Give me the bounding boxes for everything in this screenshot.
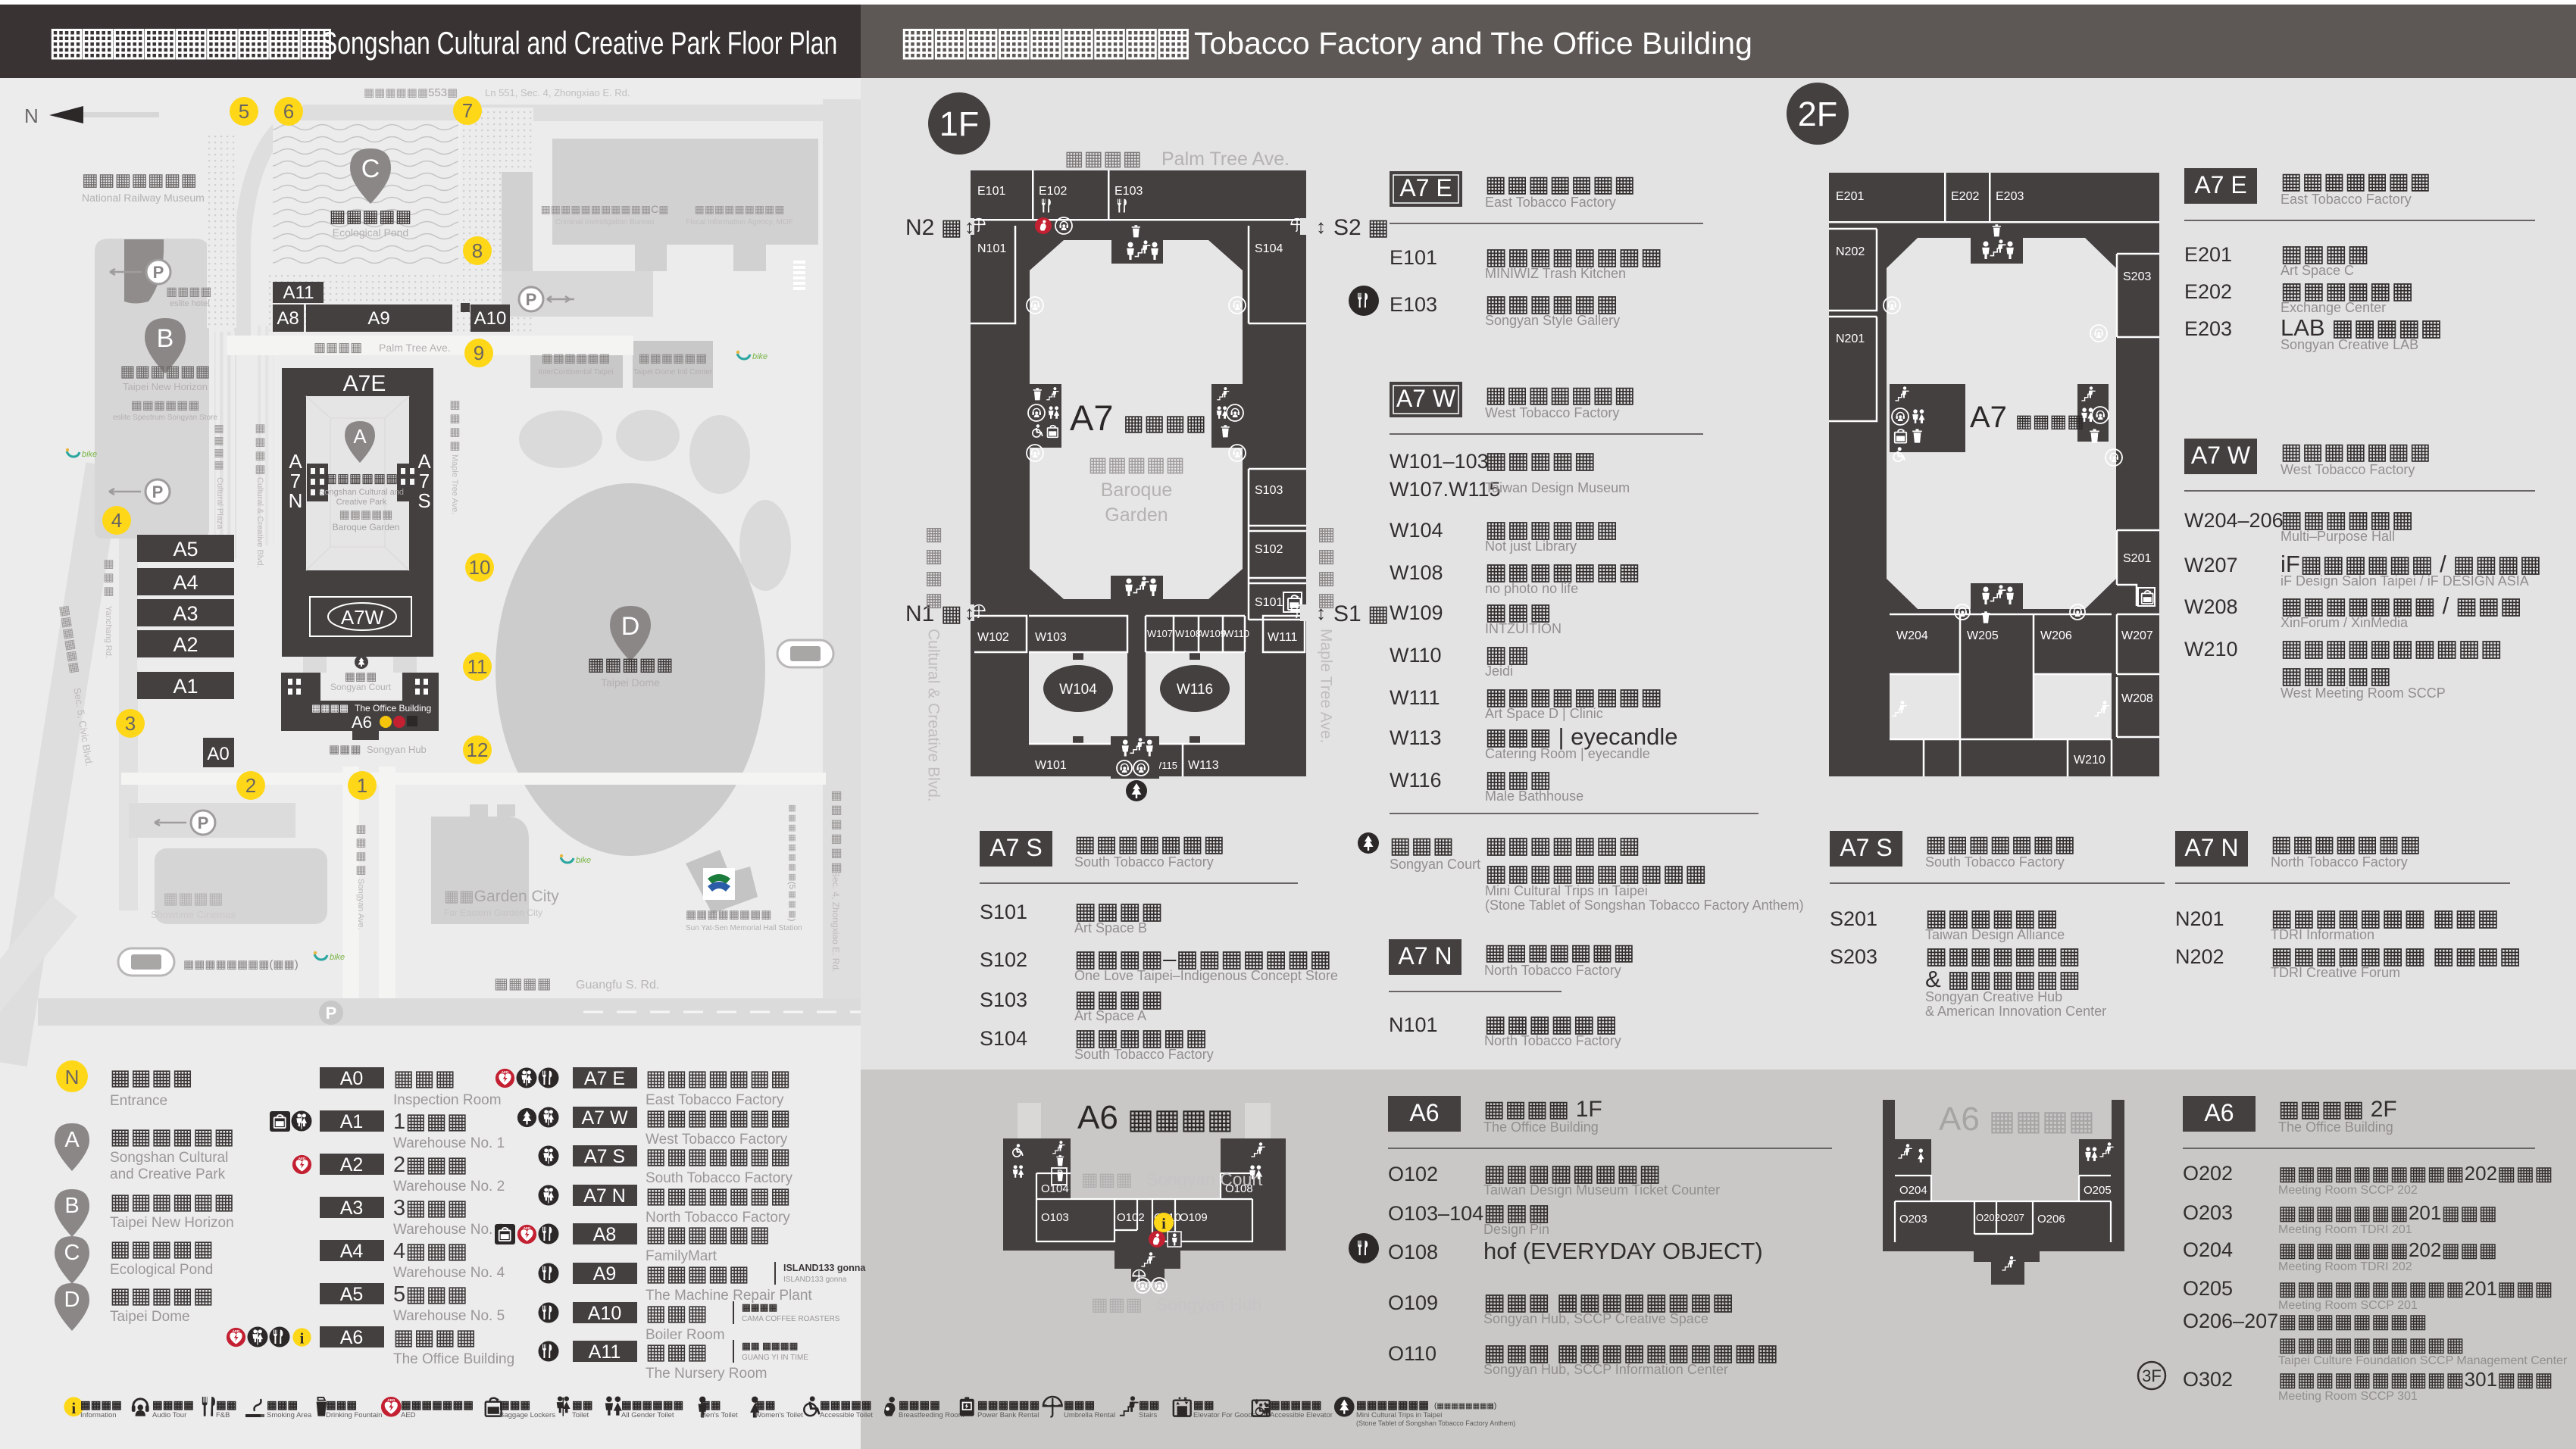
svg-text:A5: A5 [173,538,198,561]
svg-text:S2 ▦: S2 ▦ [1333,215,1389,240]
svg-text:A6 ▦▦▦▦: A6 ▦▦▦▦ [1939,1101,2095,1138]
svg-text:E203: E203 [1996,190,2024,203]
svg-text:Songyan Creative Hub: Songyan Creative Hub [1925,989,2062,1004]
svg-text:W204: W204 [1896,629,1928,642]
svg-text:The Office Building: The Office Building [393,1351,514,1367]
svg-text:1F: 1F [939,105,980,143]
svg-text:4▦▦▦: 4▦▦▦ [393,1239,467,1263]
svg-text:E202: E202 [2184,280,2232,303]
svg-text:A5: A5 [340,1284,364,1305]
svg-text:8: 8 [472,239,483,262]
svg-text:Songyan Hub: Songyan Hub [367,744,427,755]
svg-text:A0: A0 [207,744,229,764]
svg-text:F&B: F&B [216,1411,230,1419]
svg-text:A4: A4 [173,571,198,594]
svg-text:Maple Tree Ave.: Maple Tree Ave. [450,454,459,514]
svg-text:▦▦▦▦: ▦▦▦▦ [494,976,552,992]
svg-text:10: 10 [469,556,491,579]
svg-text:O207: O207 [2000,1212,2024,1223]
svg-text:A11: A11 [589,1341,621,1363]
svg-text:Taipei New Horizon: Taipei New Horizon [110,1215,234,1231]
svg-text:P: P [526,290,537,309]
svg-text:▦▦▦▦: ▦▦▦▦ [393,1326,477,1350]
svg-text:O205: O205 [2183,1277,2233,1300]
svg-text:A6 ▦▦▦▦: A6 ▦▦▦▦ [1077,1099,1233,1136]
svg-text:Jeidi: Jeidi [1485,664,1513,679]
svg-text:The Office Building: The Office Building [2278,1120,2393,1135]
svg-text:A0: A0 [340,1068,364,1089]
svg-text:▦▦▦▦▦▦▦▦(5▦▦▦): ▦▦▦▦▦▦▦▦(5▦▦▦) [787,803,796,921]
svg-text:& American Innovation Center: & American Innovation Center [1925,1004,2106,1019]
svg-text:South Tobacco Factory: South Tobacco Factory [1074,854,1214,870]
svg-text:W113: W113 [1390,726,1442,749]
svg-text:A7 E: A7 E [2194,171,2246,198]
svg-text:▦▦▦▦▦▦▦▦▦▦201▦▦▦: ▦▦▦▦▦▦▦▦▦▦201▦▦▦ [2278,1277,2553,1300]
svg-text:AED: AED [524,1226,531,1230]
svg-text:Warehouse No. 3: Warehouse No. 3 [393,1222,505,1238]
svg-text:11: 11 [467,655,488,678]
svg-text:E201: E201 [1836,190,1864,203]
svg-text:Meeting Room SCCP 301: Meeting Room SCCP 301 [2278,1390,2418,1403]
svg-text:B: B [64,1194,79,1218]
svg-text:▦▦▦: ▦▦▦ [329,743,361,756]
svg-text:W206: W206 [2040,629,2072,642]
svg-text:▦▦▦▦: ▦▦▦▦ [1315,523,1336,611]
svg-text:9: 9 [474,342,484,364]
svg-text:P: P [326,1004,337,1023]
svg-text:▦▦▦▦▦▦▦: ▦▦▦▦▦▦▦ [2281,169,2431,194]
svg-text:& ▦▦▦▦▦▦: & ▦▦▦▦▦▦ [1925,966,2080,992]
svg-text:▦▦▦▦: ▦▦▦▦ [80,1400,122,1412]
svg-text:▦▦▦▦▦▦▦: ▦▦▦▦▦▦▦ [646,1106,791,1130]
svg-text:▦▦▦▦▦▦: ▦▦▦▦▦▦ [542,352,611,365]
svg-text:O103–104: O103–104 [1388,1202,1483,1225]
svg-text:▦▦▦: ▦▦▦ [499,1400,530,1412]
svg-text:▦▦▦▦▦▦▦: ▦▦▦▦▦▦▦ [1484,940,1634,965]
svg-text:O102: O102 [1388,1163,1438,1185]
svg-text:▦▦▦▦: ▦▦▦▦ [742,1302,777,1313]
svg-text:A6: A6 [1409,1099,1439,1126]
svg-text:▦▦▦: ▦▦▦ [1091,1294,1143,1315]
svg-text:S1 ▦: S1 ▦ [1333,601,1389,626]
svg-text:A7 N: A7 N [2184,834,2238,861]
svg-text:▦▦▦▦▦▦▦▦: ▦▦▦▦▦▦▦▦ [686,908,771,921]
svg-text:A7 E: A7 E [1399,174,1452,201]
svg-text:A9: A9 [367,308,389,329]
svg-text:E101: E101 [1390,246,1437,269]
svg-text:▦▦▦▦▦: ▦▦▦▦▦ [110,1237,214,1261]
svg-text:Male Bathhouse: Male Bathhouse [1485,789,1583,804]
svg-text:hof (EVERYDAY OBJECT): hof (EVERYDAY OBJECT) [1483,1238,1763,1264]
svg-text:Inspection Room: Inspection Room [393,1092,502,1108]
svg-text:E203: E203 [2184,317,2232,340]
svg-text:Palm Tree Ave.: Palm Tree Ave. [379,342,451,354]
svg-text:B: B [157,324,174,353]
svg-text:XinForum / XinMedia: XinForum / XinMedia [2281,615,2409,630]
svg-text:W110: W110 [1224,628,1249,639]
svg-text:A7 S: A7 S [1840,834,1892,861]
svg-text:North Tobacco Factory: North Tobacco Factory [1484,963,1621,978]
svg-text:Palm Tree Ave.: Palm Tree Ave. [1161,148,1290,170]
svg-text:W101–103: W101–103 [1390,450,1489,473]
svg-text:▦▦▦▦: ▦▦▦▦ [214,423,226,471]
svg-text:Songyan Court: Songyan Court [1146,1170,1263,1189]
svg-text:W205: W205 [1967,629,1999,642]
svg-text:▦▦▦▦▦▦▦▦▦: ▦▦▦▦▦▦▦▦▦ [899,19,1190,64]
svg-text:▦▦▦▦ 2F: ▦▦▦▦ 2F [2278,1097,2397,1122]
svg-text:W111: W111 [1268,631,1298,644]
svg-text:National Railway Museum: National Railway Museum [82,192,205,204]
svg-text:N202: N202 [1836,245,1865,258]
svg-text:Warehouse No. 1: Warehouse No. 1 [393,1135,505,1151]
svg-text:▦▦▦▦▦▦▦: ▦▦▦▦▦▦▦ [2271,832,2421,857]
svg-text:▦▦: ▦▦ [700,1400,721,1412]
svg-text:O103: O103 [1041,1211,1069,1224]
svg-text:Baroque: Baroque [1101,479,1173,501]
svg-text:▦▦▦: ▦▦▦ [1390,833,1454,858]
svg-text:▦▦: ▦▦ [572,1400,593,1412]
svg-text:W104: W104 [1390,519,1443,542]
svg-text:W207: W207 [2184,554,2238,576]
svg-text:S103: S103 [980,988,1027,1011]
svg-text:All Gender Toilet: All Gender Toilet [621,1411,674,1419]
svg-text:▦▦▦▦▦▦▦: ▦▦▦▦▦▦▦ [401,1400,474,1412]
svg-text:Taiwan Design Alliance: Taiwan Design Alliance [1925,927,2065,942]
svg-text:▦▦▦▦▦▦▦▦▦: ▦▦▦▦▦▦▦▦▦ [48,19,332,64]
svg-text:▦▦▦▦: ▦▦▦▦ [449,398,461,452]
svg-text:West Meeting Room SCCP: West Meeting Room SCCP [2281,685,2446,701]
svg-text:Songshan Cultural and Creative: Songshan Cultural and Creative Park Floo… [321,25,837,61]
svg-text:Songshan Cultural: Songshan Cultural [110,1150,228,1166]
svg-text:A4: A4 [340,1241,364,1262]
svg-text:Songyan Hub, SCCP Information: Songyan Hub, SCCP Information Center [1483,1362,1728,1377]
svg-text:3: 3 [125,712,136,735]
svg-text:▦▦▦▦▦: ▦▦▦▦▦ [2281,662,2391,689]
svg-text:▦▦▦▦▦▦▦: ▦▦▦▦▦▦▦ [1485,832,1640,858]
svg-text:Meeting Room TDRI 201: Meeting Room TDRI 201 [2278,1223,2412,1236]
svg-text:Catering Room | eyecandle: Catering Room | eyecandle [1485,746,1650,761]
svg-text:W108: W108 [1390,561,1443,584]
svg-text:O205: O205 [2084,1184,2112,1197]
svg-text:W210: W210 [2184,638,2238,660]
svg-text:AED: AED [401,1411,416,1419]
svg-text:Tobacco Factory and The Office: Tobacco Factory and The Office Building [1194,26,1752,61]
svg-text:W116: W116 [1390,769,1442,792]
svg-text:A10: A10 [588,1303,621,1324]
svg-text:▦▦▦▦: ▦▦▦▦ [166,286,211,298]
svg-text:Exchange Center: Exchange Center [2281,300,2386,315]
svg-text:Songyan Court: Songyan Court [1390,857,1480,872]
svg-text:▦▦▦▦▦▦: ▦▦▦▦▦▦ [621,1400,683,1412]
svg-text:▦▦▦▦▦: ▦▦▦▦▦ [1088,453,1185,476]
svg-text:North Tobacco Factory: North Tobacco Factory [1484,1033,1621,1048]
svg-text:▦▦▦▦: ▦▦▦▦ [110,1066,193,1090]
svg-text:W103: W103 [1035,631,1067,644]
svg-text:A11: A11 [283,283,314,303]
svg-text:South Tobacco Factory: South Tobacco Factory [1074,1047,1214,1062]
svg-text:W109: W109 [1390,601,1443,624]
svg-text:▦▦▦▦▦▦▦: ▦▦▦▦▦▦▦ [1074,832,1224,857]
svg-text:AED: AED [233,1329,240,1333]
svg-text:▦▦▦▦ 1F: ▦▦▦▦ 1F [1483,1097,1602,1122]
svg-text:W204–206: W204–206 [2184,509,2284,532]
svg-text:S102: S102 [1255,543,1283,556]
svg-text:Art Space A: Art Space A [1074,1008,1146,1023]
svg-text:C: C [361,155,380,183]
svg-text:Songyan Court: Songyan Court [330,682,392,692]
svg-text:North Tobacco Factory: North Tobacco Factory [2271,854,2408,870]
svg-text:▦▦▦▦▦▦▦201▦▦▦: ▦▦▦▦▦▦▦201▦▦▦ [2278,1201,2497,1224]
svg-text:eslite Spectrum Songyan Store: eslite Spectrum Songyan Store [113,414,217,422]
svg-text:▦▦▦▦: ▦▦▦▦ [923,523,944,611]
svg-text:2F: 2F [1798,95,1838,133]
svg-text:Maple Tree Ave.: Maple Tree Ave. [1318,629,1335,743]
svg-text:Yanchang Rd.: Yanchang Rd. [104,606,113,658]
svg-text:▦▦▦▦▦▦▦: ▦▦▦▦▦▦▦ [1485,172,1635,197]
svg-text:Smoking Area: Smoking Area [267,1411,312,1419]
svg-text:S104: S104 [1255,242,1283,255]
svg-text:E101: E101 [977,185,1005,198]
svg-text:▦▦▦▦▦▦: ▦▦▦▦▦▦ [110,1125,234,1149]
svg-text:GUANG YI IN TIME: GUANG YI IN TIME [742,1354,808,1362]
svg-text:▦▦▦▦▦▦▦▦▦▦: ▦▦▦▦▦▦▦▦▦▦ [2278,1333,2465,1356]
svg-text:5: 5 [239,100,249,123]
svg-text:▦▦▦▦▦▦▦: ▦▦▦▦▦▦▦ [1925,832,2075,857]
svg-text:A8: A8 [593,1224,617,1245]
svg-text:A3: A3 [173,602,198,625]
svg-text:▦▦: ▦▦ [755,1400,776,1412]
svg-text:One Love Taipei–Indigenous Con: One Love Taipei–Indigenous Concept Store [1074,968,1338,983]
svg-text:Audio Tour: Audio Tour [152,1411,186,1419]
svg-text:Information: Information [80,1411,117,1419]
svg-text:N202: N202 [2175,945,2224,968]
svg-text:(Stone Tablet of Songshan Toba: (Stone Tablet of Songshan Tobacco Factor… [1485,898,1804,913]
svg-text:▦▦▦▦: ▦▦▦▦ [152,1400,194,1412]
svg-text:Meeting Room SCCP 202: Meeting Room SCCP 202 [2278,1184,2418,1197]
svg-text:P: P [198,814,209,832]
svg-text:N101: N101 [1389,1013,1438,1036]
svg-text:O108: O108 [1388,1241,1438,1263]
svg-text:AED: AED [387,1398,395,1403]
svg-text:▦▦▦▦▦: ▦▦▦▦▦ [330,206,412,226]
svg-text:N: N [24,105,39,127]
svg-text:S203: S203 [1830,945,1877,968]
svg-text:E102: E102 [1039,185,1067,198]
svg-text:i: i [300,1331,305,1348]
svg-text:D: D [64,1288,80,1312]
svg-text:E103: E103 [1390,293,1437,316]
svg-text:A9: A9 [593,1263,617,1285]
svg-text:S104: S104 [980,1027,1027,1050]
svg-text:West Tobacco Factory: West Tobacco Factory [2281,462,2415,477]
svg-text:Art Space D | Clinic: Art Space D | Clinic [1485,706,1603,721]
svg-text:bike: bike [576,856,591,865]
svg-text:iF Design Salon Taipei / iF DE: iF Design Salon Taipei / iF DESIGN ASIA [2281,573,2529,589]
svg-text:▦▦▦▦▦: ▦▦▦▦▦ [110,1284,214,1308]
svg-text:▦▦▦▦▦: ▦▦▦▦▦ [587,654,673,675]
svg-text:ISLAND133 gonna: ISLAND133 gonna [783,1276,847,1284]
svg-text:▦▦▦▦▦▦▦▦▦▦: ▦▦▦▦▦▦▦▦▦▦ [2281,635,2503,661]
svg-text:bike: bike [752,352,767,361]
svg-text:Taiwan Design Museum Ticket Co: Taiwan Design Museum Ticket Counter [1483,1182,1720,1198]
svg-text:Multi–Purpose Hall: Multi–Purpose Hall [2281,529,2395,544]
svg-text:▦▦▦: ▦▦▦ [326,1400,357,1412]
svg-text:S101: S101 [980,901,1027,923]
svg-text:▦▦▦▦▦▦▦: ▦▦▦▦▦▦▦ [82,170,197,189]
svg-text:AED: AED [502,1070,509,1074]
svg-text:Cultural & Creative Blvd.: Cultural & Creative Blvd. [925,629,943,802]
svg-text:AED: AED [299,1157,306,1160]
svg-text:▦▦▦▦▦▦: ▦▦▦▦▦▦ [110,1190,234,1214]
svg-text:▦▦▦: ▦▦▦ [646,1301,708,1326]
svg-text:A7 S: A7 S [584,1146,625,1167]
svg-text:Taiwan Design Museum: Taiwan Design Museum [1485,480,1630,495]
svg-text:▦▦▦▦: ▦▦▦▦ [254,421,267,476]
svg-text:Taipei Dome Intl Center: Taipei Dome Intl Center [633,368,713,376]
svg-text:East Tobacco Factory: East Tobacco Factory [1485,195,1616,210]
svg-text:West Tobacco Factory: West Tobacco Factory [1485,405,1619,420]
svg-text:N201: N201 [1836,333,1865,345]
svg-text:Mini Cultural Trips in Taipei: Mini Cultural Trips in Taipei [1485,883,1648,898]
svg-text:▦▦▦▦▦▦▦▦: ▦▦▦▦▦▦▦▦ [2278,1310,2428,1332]
svg-text:INTZUITION: INTZUITION [1485,621,1562,636]
svg-text:S203: S203 [2123,270,2151,283]
svg-text:W207: W207 [2121,629,2153,642]
svg-text:▦▦▦▦▦▦: ▦▦▦▦▦▦ [120,363,210,380]
svg-text:▦▦▦▦: ▦▦▦▦ [163,890,223,907]
svg-text:bike: bike [82,450,97,459]
svg-text:A7 N: A7 N [1398,942,1452,970]
svg-text:W104: W104 [1059,682,1097,698]
svg-text:W208: W208 [2184,595,2238,618]
svg-text:▦▦▦▦▦▦▦: ▦▦▦▦▦▦▦ [2281,439,2431,464]
svg-text:▦▦▦▦▦▦▦▦▦: ▦▦▦▦▦▦▦▦▦ [694,203,784,215]
svg-text:N: N [289,489,303,512]
svg-text:▦▦▦▦▦▦▦▦▦▦▦C▦: ▦▦▦▦▦▦▦▦▦▦▦C▦ [541,203,669,215]
svg-text:O203: O203 [2183,1201,2233,1224]
svg-text:S101: S101 [1255,596,1283,609]
svg-text:InterContinental Taipei: InterContinental Taipei [538,368,613,376]
svg-text:6: 6 [283,100,294,123]
svg-text:South Tobacco Factory: South Tobacco Factory [1925,854,2065,870]
svg-text:A2: A2 [173,633,198,656]
svg-text:O102: O102 [1117,1211,1145,1224]
svg-text:O206–207: O206–207 [2183,1310,2278,1332]
svg-text:A7E: A7E [343,371,386,396]
svg-text:▦▦▦: ▦▦▦ [102,557,115,598]
svg-text:N201: N201 [2175,907,2224,930]
svg-text:Ln 551, Sec. 4, Zhongxiao E. R: Ln 551, Sec. 4, Zhongxiao E. Rd. [485,87,630,98]
svg-text:W107: W107 [1147,628,1173,639]
svg-text:O202: O202 [1976,1212,2000,1223]
svg-text:D: D [621,612,640,641]
svg-text:W102: W102 [977,631,1009,644]
svg-text:Songyan Hub: Songyan Hub [1156,1294,1261,1314]
svg-text:Meeting Room TDRI 202: Meeting Room TDRI 202 [2278,1260,2412,1273]
svg-text:▦▦▦▦▦▦▦: ▦▦▦▦▦▦▦ [646,1184,791,1208]
svg-text:A: A [353,425,367,448]
svg-text:Drinking Fountain: Drinking Fountain [326,1411,382,1419]
svg-text:▦▦▦▦▦▦: ▦▦▦▦▦▦ [830,788,843,874]
svg-text:▦▦Garden City: ▦▦Garden City [444,888,559,905]
svg-text:O204: O204 [2183,1238,2233,1261]
svg-text:Entrance: Entrance [110,1093,167,1109]
svg-text:MINIWIZ Trash Kitchen: MINIWIZ Trash Kitchen [1485,266,1626,281]
svg-text:Showtime Cinemas: Showtime Cinemas [151,909,236,920]
svg-text:Design Pin: Design Pin [1483,1222,1549,1237]
svg-text:Taipei Dome: Taipei Dome [601,676,660,689]
svg-text:Songyan Ave.: Songyan Ave. [356,879,365,930]
svg-text:Creative Park: Creative Park [336,498,387,507]
svg-text:▦▦▦: ▦▦▦ [267,1400,298,1412]
svg-text:TDRI Information: TDRI Information [2271,927,2374,942]
svg-text:Songyan Style Gallery: Songyan Style Gallery [1485,313,1620,328]
svg-text:E201: E201 [2184,243,2232,266]
svg-text:Toilet: Toilet [572,1411,589,1419]
svg-text:A8: A8 [277,308,299,329]
svg-text:▦▦▦▦: ▦▦▦▦ [1064,147,1142,170]
svg-text:▦▦▦▦▦▦▦▦▦▦301▦▦▦: ▦▦▦▦▦▦▦▦▦▦301▦▦▦ [2278,1368,2553,1391]
svg-text:▦▦▦▦▦▦▦: ▦▦▦▦▦▦▦ [1485,383,1635,408]
svg-text:N: N [65,1066,80,1088]
svg-text:▦▦▦▦▦▦▦: ▦▦▦▦▦▦▦ [646,1145,791,1169]
svg-text:Women's Toilet: Women's Toilet [755,1411,803,1419]
svg-text:1▦▦▦: 1▦▦▦ [393,1110,467,1134]
svg-text:W110: W110 [1390,644,1442,667]
svg-text:Sun Yat-Sen Memorial Hall Stat: Sun Yat-Sen Memorial Hall Station [686,924,802,932]
svg-text:3F: 3F [2142,1366,2162,1385]
svg-text:A7W: A7W [341,606,384,629]
svg-text:P: P [153,263,164,282]
svg-text:12: 12 [467,739,489,761]
svg-text:S201: S201 [1830,907,1877,930]
svg-text:eslite hotel: eslite hotel [170,299,210,308]
svg-text:i: i [71,1399,76,1417]
svg-text:▦▦▦: ▦▦▦ [646,1340,708,1364]
svg-text:A2: A2 [340,1154,364,1176]
svg-text:▦▦ ▦▦▦▦: ▦▦ ▦▦▦▦ [742,1341,799,1351]
svg-text:2: 2 [245,774,256,797]
svg-text:W111: W111 [1390,686,1440,709]
svg-text:▦▦▦: ▦▦▦ [1081,1170,1133,1190]
svg-text:W113: W113 [1188,759,1219,772]
svg-text:5▦▦▦: 5▦▦▦ [393,1282,467,1307]
svg-text:O206: O206 [2037,1213,2065,1226]
svg-text:A7 S: A7 S [989,834,1042,861]
svg-text:Garden: Garden [1105,504,1168,526]
svg-text:W108: W108 [1175,628,1201,639]
svg-text:Warehouse No. 2: Warehouse No. 2 [393,1179,505,1194]
svg-text:i: i [1161,1216,1166,1232]
svg-text:Art Space B: Art Space B [1074,920,1147,935]
svg-text:Fiscal Information Agency, MOF: Fiscal Information Agency, MOF [686,218,793,226]
svg-text:ISLAND133 gonna: ISLAND133 gonna [783,1263,866,1273]
svg-text:bike: bike [330,953,345,962]
svg-text:▦▦▦▦▦▦553▦: ▦▦▦▦▦▦553▦ [364,86,458,99]
svg-text:Ecological Pond: Ecological Pond [333,226,408,239]
svg-text:S201: S201 [2123,552,2151,565]
svg-text:O204: O204 [1899,1184,1927,1197]
svg-text:Taipei Culture Foundation SCCP: Taipei Culture Foundation SCCP Managemen… [2278,1354,2568,1367]
svg-text:A6: A6 [352,713,372,732]
svg-text:and Creative Park: and Creative Park [110,1166,226,1182]
svg-text:S103: S103 [1255,484,1283,497]
svg-text:W116: W116 [1177,682,1213,698]
svg-text:▦▦▦▦▦▦▦: ▦▦▦▦▦▦▦ [1925,942,2080,969]
svg-text:▦▦: ▦▦ [216,1400,237,1412]
svg-text:A7 W: A7 W [581,1107,628,1129]
svg-text:The Office Building: The Office Building [355,703,431,714]
